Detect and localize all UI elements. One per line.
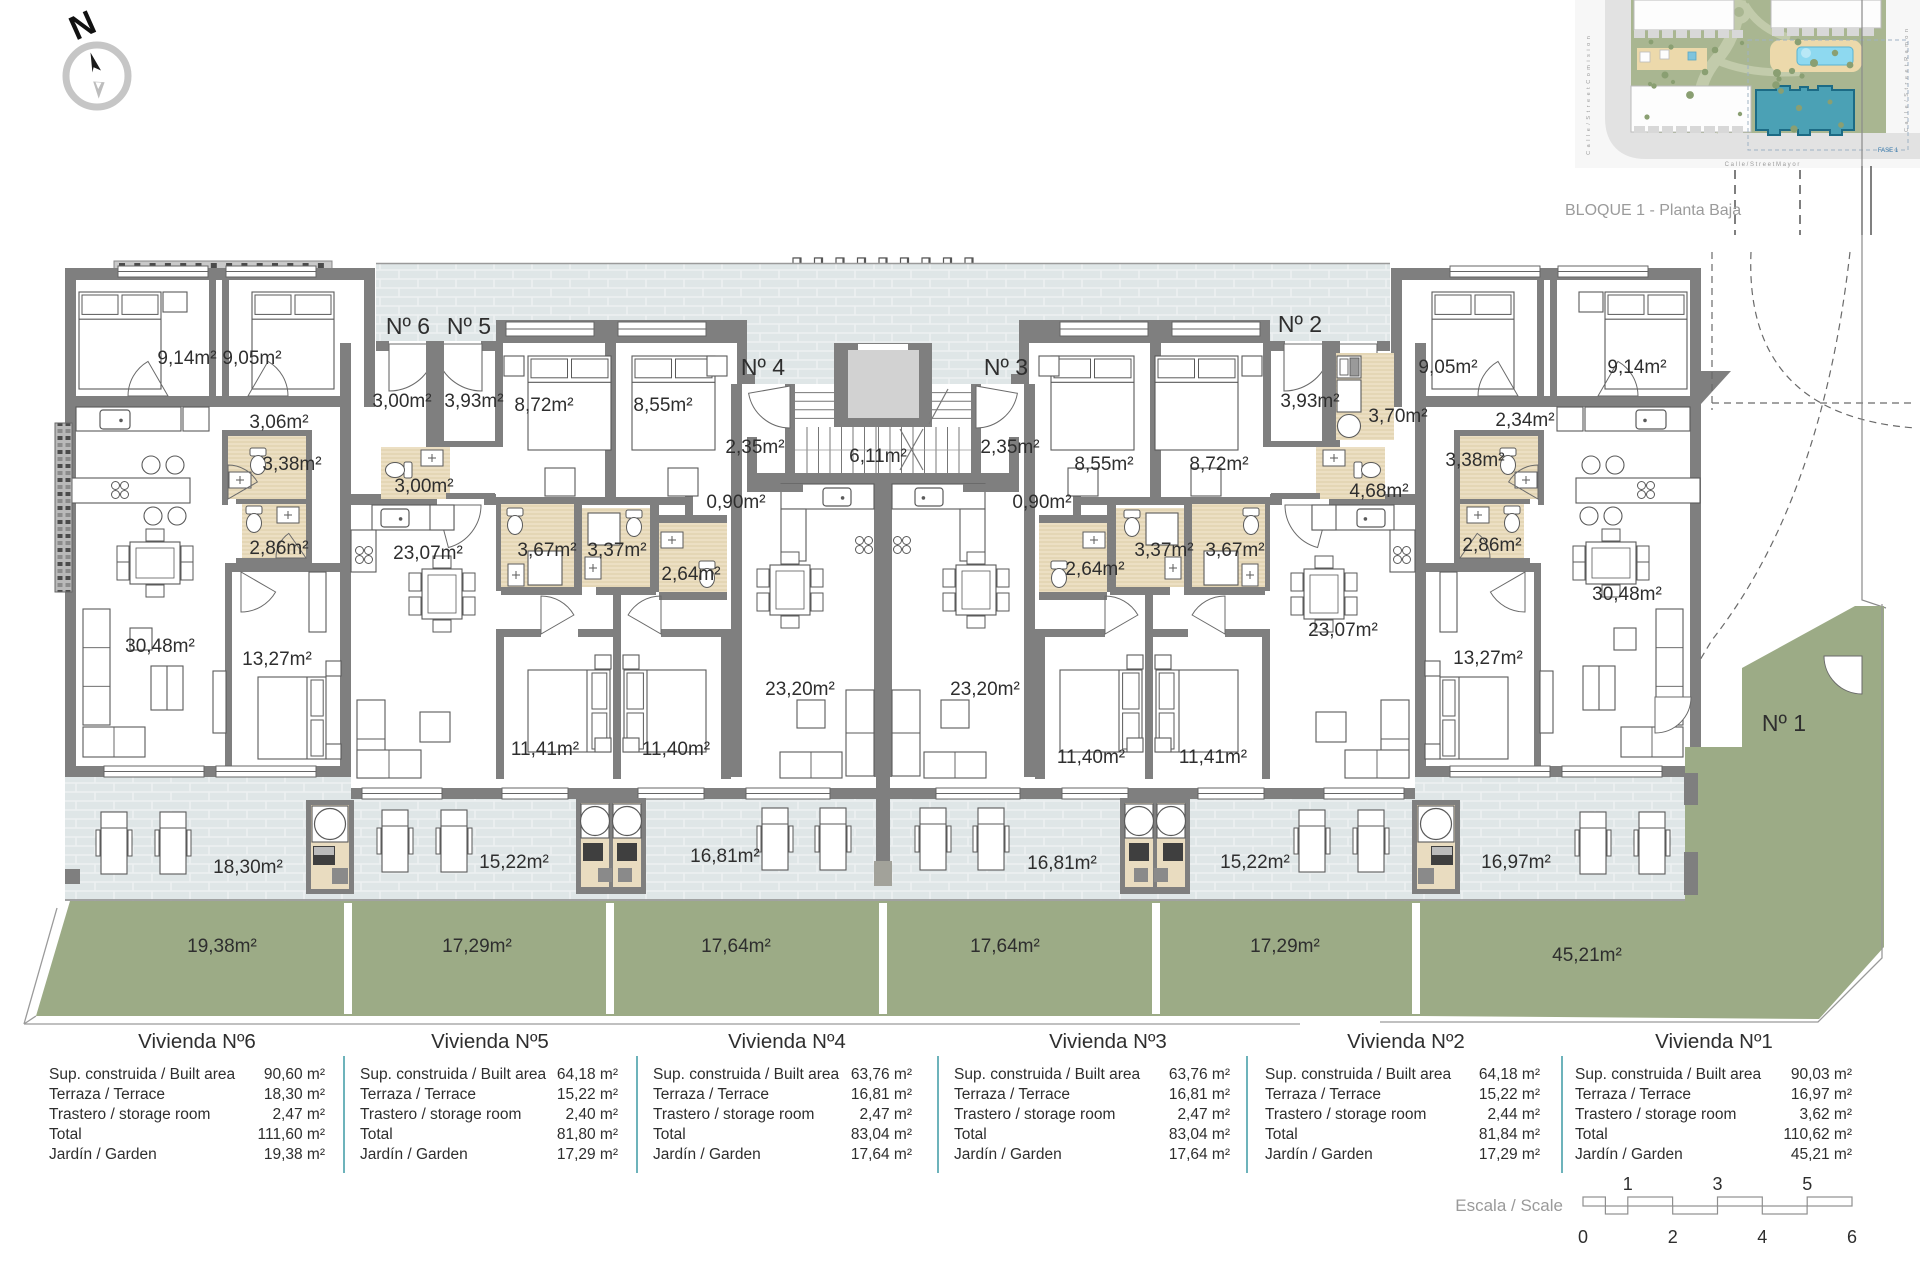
svg-text:BLOQUE 1 - Planta Baja: BLOQUE 1 - Planta Baja [1565, 202, 1741, 219]
svg-text:Vivienda Nº5: Vivienda Nº5 [431, 1030, 549, 1053]
svg-text:Terraza / Terrace: Terraza / Terrace [954, 1086, 1070, 1103]
svg-text:16,81m²: 16,81m² [1027, 853, 1097, 874]
svg-text:Trastero / storage room: Trastero / storage room [49, 1106, 210, 1123]
svg-text:Sup. construida / Built area: Sup. construida / Built area [1575, 1066, 1761, 1083]
svg-text:45,21m²: 45,21m² [1552, 945, 1622, 966]
svg-text:Jardín / Garden: Jardín / Garden [954, 1146, 1062, 1163]
svg-text:Terraza / Terrace: Terraza / Terrace [360, 1086, 476, 1103]
svg-text:2,86m²: 2,86m² [1462, 535, 1521, 556]
svg-text:63,76 m²: 63,76 m² [851, 1066, 912, 1083]
svg-text:0: 0 [1578, 1227, 1588, 1247]
svg-text:90,60 m²: 90,60 m² [264, 1066, 325, 1083]
svg-text:9,14m²: 9,14m² [1607, 357, 1666, 378]
svg-text:Jardín / Garden: Jardín / Garden [1575, 1146, 1683, 1163]
svg-text:23,20m²: 23,20m² [950, 679, 1020, 700]
svg-text:C a l l e / S t r e e t: C a l l e / S t r e e t M a y o r [1725, 162, 1800, 168]
svg-text:Jardín / Garden: Jardín / Garden [360, 1146, 468, 1163]
svg-text:FASE 1: FASE 1 [1878, 148, 1899, 154]
svg-text:15,22 m²: 15,22 m² [1479, 1086, 1540, 1103]
svg-text:4,68m²: 4,68m² [1349, 481, 1408, 502]
svg-text:Terraza / Terrace: Terraza / Terrace [653, 1086, 769, 1103]
svg-text:30,48m²: 30,48m² [125, 636, 195, 657]
svg-text:Total: Total [1265, 1126, 1298, 1143]
svg-text:2,44 m²: 2,44 m² [1487, 1106, 1540, 1123]
svg-text:2,47 m²: 2,47 m² [1177, 1106, 1230, 1123]
svg-text:Trastero / storage room: Trastero / storage room [360, 1106, 521, 1123]
svg-text:3,93m²: 3,93m² [1280, 391, 1339, 412]
svg-text:2,35m²: 2,35m² [725, 437, 784, 458]
svg-text:2,34m²: 2,34m² [1495, 410, 1554, 431]
svg-text:2,86m²: 2,86m² [249, 538, 308, 559]
svg-text:16,97 m²: 16,97 m² [1791, 1086, 1852, 1103]
svg-text:23,07m²: 23,07m² [1308, 620, 1378, 641]
svg-text:5: 5 [1802, 1174, 1812, 1194]
svg-text:15,22m²: 15,22m² [479, 852, 549, 873]
svg-text:3,37m²: 3,37m² [587, 540, 646, 561]
svg-text:2,47 m²: 2,47 m² [272, 1106, 325, 1123]
svg-text:16,97m²: 16,97m² [1481, 852, 1551, 873]
svg-text:Nº 5: Nº 5 [447, 313, 491, 339]
svg-text:Total: Total [954, 1126, 987, 1143]
svg-text:Vivienda Nº2: Vivienda Nº2 [1347, 1030, 1465, 1053]
svg-text:64,18 m²: 64,18 m² [557, 1066, 618, 1083]
svg-text:Terraza / Terrace: Terraza / Terrace [1575, 1086, 1691, 1103]
svg-text:23,20m²: 23,20m² [765, 679, 835, 700]
svg-text:2: 2 [1668, 1227, 1678, 1247]
svg-text:83,04 m²: 83,04 m² [851, 1126, 912, 1143]
svg-text:19,38 m²: 19,38 m² [264, 1146, 325, 1163]
svg-text:3,38m²: 3,38m² [262, 454, 321, 475]
svg-text:17,64m²: 17,64m² [701, 936, 771, 957]
svg-text:17,64 m²: 17,64 m² [851, 1146, 912, 1163]
svg-text:13,27m²: 13,27m² [1453, 648, 1523, 669]
svg-text:Trastero / storage room: Trastero / storage room [1575, 1106, 1736, 1123]
svg-text:17,64m²: 17,64m² [970, 936, 1040, 957]
svg-text:Total: Total [1575, 1126, 1608, 1143]
svg-text:45,21 m²: 45,21 m² [1791, 1146, 1852, 1163]
svg-text:17,64 m²: 17,64 m² [1169, 1146, 1230, 1163]
svg-text:Nº 6: Nº 6 [386, 313, 430, 339]
svg-text:Trastero / storage room: Trastero / storage room [653, 1106, 814, 1123]
svg-text:Jardín / Garden: Jardín / Garden [653, 1146, 761, 1163]
svg-text:0,90m²: 0,90m² [1012, 492, 1071, 513]
svg-text:19,38m²: 19,38m² [187, 936, 257, 957]
svg-text:Terraza / Terrace: Terraza / Terrace [49, 1086, 165, 1103]
svg-text:Total: Total [49, 1126, 82, 1143]
svg-text:110,62 m²: 110,62 m² [1783, 1126, 1852, 1143]
svg-text:18,30m²: 18,30m² [213, 857, 283, 878]
svg-text:17,29m²: 17,29m² [1250, 936, 1320, 957]
svg-text:Vivienda Nº6: Vivienda Nº6 [138, 1030, 256, 1053]
svg-text:11,41m²: 11,41m² [511, 739, 579, 760]
svg-text:Trastero / storage room: Trastero / storage room [1265, 1106, 1426, 1123]
svg-text:3,67m²: 3,67m² [517, 540, 576, 561]
svg-text:C a l l e / S t r e e t C: C a l l e / S t r e e t C o m i s i o n [1586, 35, 1592, 155]
svg-text:11,41m²: 11,41m² [1179, 747, 1247, 768]
svg-text:6: 6 [1847, 1227, 1857, 1247]
svg-text:11,40m²: 11,40m² [642, 739, 710, 760]
svg-text:16,81 m²: 16,81 m² [851, 1086, 912, 1103]
svg-text:2,64m²: 2,64m² [661, 564, 720, 585]
svg-text:2,40 m²: 2,40 m² [565, 1106, 618, 1123]
svg-text:9,05m²: 9,05m² [222, 348, 281, 369]
svg-text:15,22m²: 15,22m² [1220, 852, 1290, 873]
svg-text:Nº 3: Nº 3 [984, 354, 1028, 380]
svg-text:Sup. construida / Built area: Sup. construida / Built area [1265, 1066, 1451, 1083]
svg-text:90,03 m²: 90,03 m² [1791, 1066, 1852, 1083]
svg-text:Nº 1: Nº 1 [1762, 710, 1806, 736]
svg-text:3,67m²: 3,67m² [1205, 540, 1264, 561]
svg-text:30,48m²: 30,48m² [1592, 584, 1662, 605]
svg-text:8,55m²: 8,55m² [1074, 454, 1133, 475]
svg-text:17,29 m²: 17,29 m² [557, 1146, 618, 1163]
svg-text:18,30 m²: 18,30 m² [264, 1086, 325, 1103]
svg-text:Nº 4: Nº 4 [741, 354, 785, 380]
svg-text:63,76 m²: 63,76 m² [1169, 1066, 1230, 1083]
svg-text:Terraza / Terrace: Terraza / Terrace [1265, 1086, 1381, 1103]
svg-text:3,38m²: 3,38m² [1445, 450, 1504, 471]
svg-text:111,60 m²: 111,60 m² [258, 1126, 326, 1143]
svg-text:Total: Total [653, 1126, 686, 1143]
svg-text:3,00m²: 3,00m² [394, 476, 453, 497]
svg-text:Escala / Scale: Escala / Scale [1455, 1196, 1563, 1215]
svg-text:Vivienda Nº4: Vivienda Nº4 [728, 1030, 846, 1053]
svg-text:2,47 m²: 2,47 m² [859, 1106, 912, 1123]
svg-text:Sup. construida / Built area: Sup. construida / Built area [653, 1066, 839, 1083]
svg-text:3: 3 [1712, 1174, 1722, 1194]
svg-text:3,70m²: 3,70m² [1368, 406, 1427, 427]
svg-text:Sup. construida / Built area: Sup. construida / Built area [49, 1066, 235, 1083]
svg-text:17,29m²: 17,29m² [442, 936, 512, 957]
svg-text:8,72m²: 8,72m² [514, 395, 573, 416]
svg-text:11,40m²: 11,40m² [1057, 747, 1125, 768]
svg-text:8,72m²: 8,72m² [1189, 454, 1248, 475]
svg-text:Nº 2: Nº 2 [1278, 311, 1322, 337]
svg-text:4: 4 [1757, 1227, 1767, 1247]
svg-text:16,81m²: 16,81m² [690, 846, 760, 867]
svg-text:23,07m²: 23,07m² [393, 543, 463, 564]
svg-text:9,14m²: 9,14m² [157, 348, 216, 369]
svg-text:13,27m²: 13,27m² [242, 649, 312, 670]
svg-text:3,00m²: 3,00m² [372, 391, 431, 412]
svg-text:17,29 m²: 17,29 m² [1479, 1146, 1540, 1163]
svg-text:15,22 m²: 15,22 m² [557, 1086, 618, 1103]
svg-text:Trastero / storage room: Trastero / storage room [954, 1106, 1115, 1123]
svg-text:3,06m²: 3,06m² [249, 412, 308, 433]
svg-text:2,64m²: 2,64m² [1065, 559, 1124, 580]
svg-text:C a l l e / S t r e e t R: C a l l e / S t r e e t R a m o n [1904, 28, 1910, 132]
svg-text:Jardín / Garden: Jardín / Garden [1265, 1146, 1373, 1163]
svg-text:9,05m²: 9,05m² [1418, 357, 1477, 378]
svg-text:6,11m²: 6,11m² [849, 446, 907, 467]
svg-text:Vivienda Nº1: Vivienda Nº1 [1655, 1030, 1773, 1053]
svg-text:3,62 m²: 3,62 m² [1799, 1106, 1852, 1123]
svg-text:3,37m²: 3,37m² [1134, 540, 1193, 561]
svg-text:0,90m²: 0,90m² [706, 492, 765, 513]
svg-text:83,04 m²: 83,04 m² [1169, 1126, 1230, 1143]
svg-text:Jardín / Garden: Jardín / Garden [49, 1146, 157, 1163]
svg-text:3,93m²: 3,93m² [444, 391, 503, 412]
svg-text:1: 1 [1623, 1174, 1633, 1194]
svg-text:81,80 m²: 81,80 m² [557, 1126, 618, 1143]
svg-text:Sup. construida / Built area: Sup. construida / Built area [360, 1066, 546, 1083]
svg-text:Sup. construida / Built area: Sup. construida / Built area [954, 1066, 1140, 1083]
svg-text:2,35m²: 2,35m² [980, 437, 1039, 458]
svg-text:Total: Total [360, 1126, 393, 1143]
svg-text:8,55m²: 8,55m² [633, 395, 692, 416]
svg-text:64,18 m²: 64,18 m² [1479, 1066, 1540, 1083]
svg-text:16,81 m²: 16,81 m² [1169, 1086, 1230, 1103]
svg-text:Vivienda Nº3: Vivienda Nº3 [1049, 1030, 1167, 1053]
svg-text:81,84 m²: 81,84 m² [1479, 1126, 1540, 1143]
